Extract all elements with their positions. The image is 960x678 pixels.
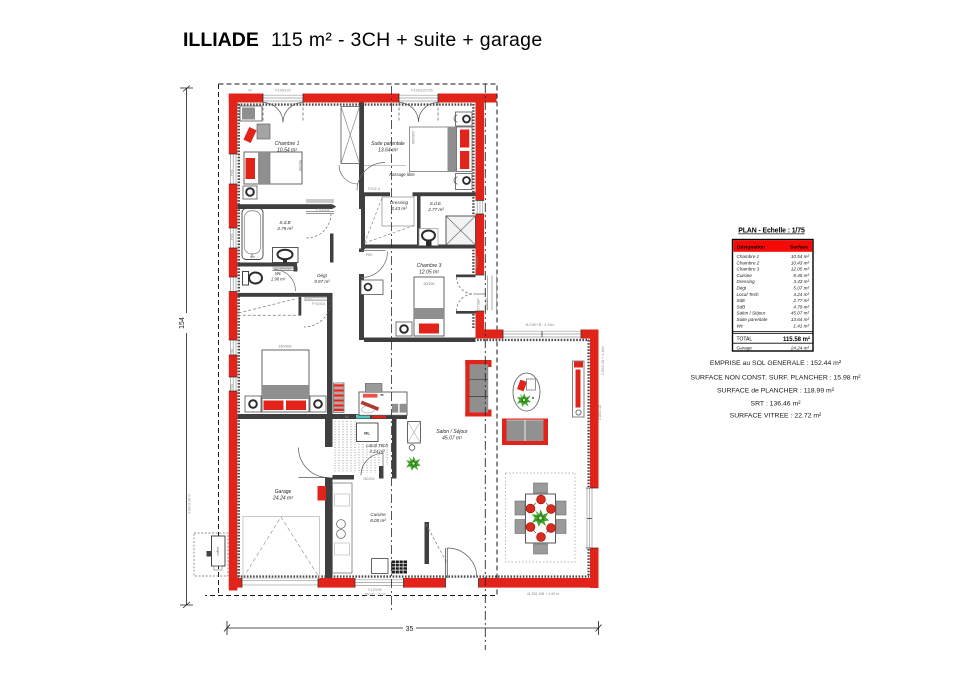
svg-text:Chambre 312.05 m²: Chambre 312.05 m² (417, 263, 442, 276)
svg-text:F/011.4: F/011.4 (368, 187, 380, 191)
svg-text:P70/204: P70/204 (316, 208, 329, 212)
svg-text:350.81 - 5.03: 350.81 - 5.03 (364, 593, 385, 597)
svg-text:SdB: SdB (737, 304, 746, 309)
svg-text:Salon / Séjour: Salon / Séjour (737, 311, 766, 316)
svg-text:Surface: Surface (790, 245, 808, 251)
svg-text:SRT : 136.46 m²: SRT : 136.46 m² (751, 401, 802, 408)
svg-text:2.77 m²: 2.77 m² (792, 298, 809, 303)
svg-text:F120/120: F120/120 (411, 89, 426, 93)
svg-text:ILLIADE: ILLIADE (183, 29, 259, 51)
svg-text:4.24 m²: 4.24 m² (793, 292, 809, 297)
svg-text:3.43 m²: 3.43 m² (793, 279, 809, 284)
svg-text:90/190: 90/190 (424, 282, 435, 286)
svg-text:coffret: coffret (216, 547, 220, 556)
svg-text:SdE: SdE (737, 298, 747, 303)
svg-text:F95: F95 (230, 234, 234, 240)
svg-text:F60: F60 (230, 349, 234, 355)
svg-text:140/200: 140/200 (411, 131, 415, 144)
svg-text:Cuisine8.00 m²: Cuisine8.00 m² (370, 512, 386, 523)
svg-text:90/190: 90/190 (298, 160, 302, 171)
svg-text:P70/204: P70/204 (312, 302, 325, 306)
svg-text:F140/120: F140/120 (275, 89, 290, 93)
svg-text:SURFACE de PLANCHER : 118.99 m: SURFACE de PLANCHER : 118.99 m² (717, 388, 835, 395)
svg-text:Chambre 3: Chambre 3 (737, 267, 760, 272)
svg-text:F120/95: F120/95 (368, 588, 381, 592)
svg-text:PLAN - Echelle : 1/75: PLAN - Echelle : 1/75 (738, 228, 805, 235)
svg-text:Garage: Garage (737, 346, 753, 351)
svg-text:35: 35 (406, 626, 414, 633)
svg-text:Chambre 2: Chambre 2 (737, 260, 760, 265)
svg-text:Local Tech: Local Tech (737, 292, 759, 297)
svg-text:Dégt: Dégt (737, 286, 747, 291)
svg-text:115.58 m²: 115.58 m² (783, 336, 810, 343)
svg-text:Cuisine: Cuisine (737, 273, 753, 278)
svg-text:F95: F95 (230, 384, 234, 390)
svg-text:F95: F95 (230, 170, 234, 176)
svg-text:2.80/2.18 + 4.10m: 2.80/2.18 + 4.10m (601, 346, 605, 375)
svg-text:Désignation: Désignation (737, 245, 765, 251)
svg-text:4.03+3.20 m: 4.03+3.20 m (188, 494, 192, 514)
svg-text:Chambre 1: Chambre 1 (737, 254, 760, 259)
svg-text:P70: P70 (305, 297, 311, 301)
svg-text:12.05 m²: 12.05 m² (791, 267, 810, 272)
svg-text:F.60/95: F.60/95 (475, 256, 479, 268)
svg-text:235: 235 (427, 89, 433, 93)
svg-text:154: 154 (179, 317, 186, 329)
svg-text:SURFACE NON CONST. SURF. PLANC: SURFACE NON CONST. SURF. PLANCHER : 15.9… (691, 375, 862, 382)
svg-text:90: 90 (248, 89, 252, 93)
svg-text:5.07 m²: 5.07 m² (793, 286, 809, 291)
svg-text:140/200: 140/200 (279, 345, 292, 349)
svg-text:Passage libre: Passage libre (389, 172, 415, 177)
svg-text:Dressing3.43 m²: Dressing3.43 m² (390, 200, 409, 211)
svg-text:Wc: Wc (737, 323, 744, 328)
svg-text:B#: B# (345, 415, 349, 419)
svg-text:250/204: 250/204 (363, 477, 375, 481)
svg-text:P80: P80 (366, 253, 372, 257)
svg-text:10.54 m²: 10.54 m² (791, 254, 810, 259)
svg-text:4.79 m²: 4.79 m² (793, 304, 809, 309)
svg-text:SURFACE VITREE : 22.72 m²: SURFACE VITREE : 22.72 m² (730, 413, 822, 420)
svg-text:B.CHE+B - 4.10m: B.CHE+B - 4.10m (526, 323, 555, 327)
svg-text:8.45 m²: 8.45 m² (793, 273, 809, 278)
svg-text:Suite parentale: Suite parentale (737, 317, 768, 322)
svg-text:115 m² - 3CH + suite + garage: 115 m² - 3CH + suite + garage (271, 29, 543, 51)
svg-text:S.d.E.2.77 m²: S.d.E.2.77 m² (427, 201, 444, 212)
svg-text:EMPRISE au SOL GENERALE : 152.: EMPRISE au SOL GENERALE : 152.44 m² (710, 360, 842, 367)
svg-text:STSEP: STSEP (477, 298, 481, 310)
svg-text:1.41 m²: 1.41 m² (793, 323, 809, 328)
svg-text:24.24 m²: 24.24 m² (790, 346, 810, 351)
svg-text:Garage24.24 m²: Garage24.24 m² (272, 489, 293, 502)
svg-text:10.43 m²: 10.43 m² (791, 260, 810, 265)
svg-text:Dressing: Dressing (737, 279, 756, 284)
svg-text:41.551 MB + 4.99 m: 41.551 MB + 4.99 m (527, 592, 559, 596)
svg-text:2.80/2.18: 2.80/2.18 (598, 405, 602, 420)
svg-text:TOTAL: TOTAL (737, 337, 753, 343)
svg-text:45.07 m²: 45.07 m² (791, 311, 810, 316)
svg-text:13.64 m²: 13.64 m² (791, 317, 810, 322)
svg-text:ML: ML (364, 431, 370, 436)
svg-text:P70/85: P70/85 (280, 268, 291, 272)
